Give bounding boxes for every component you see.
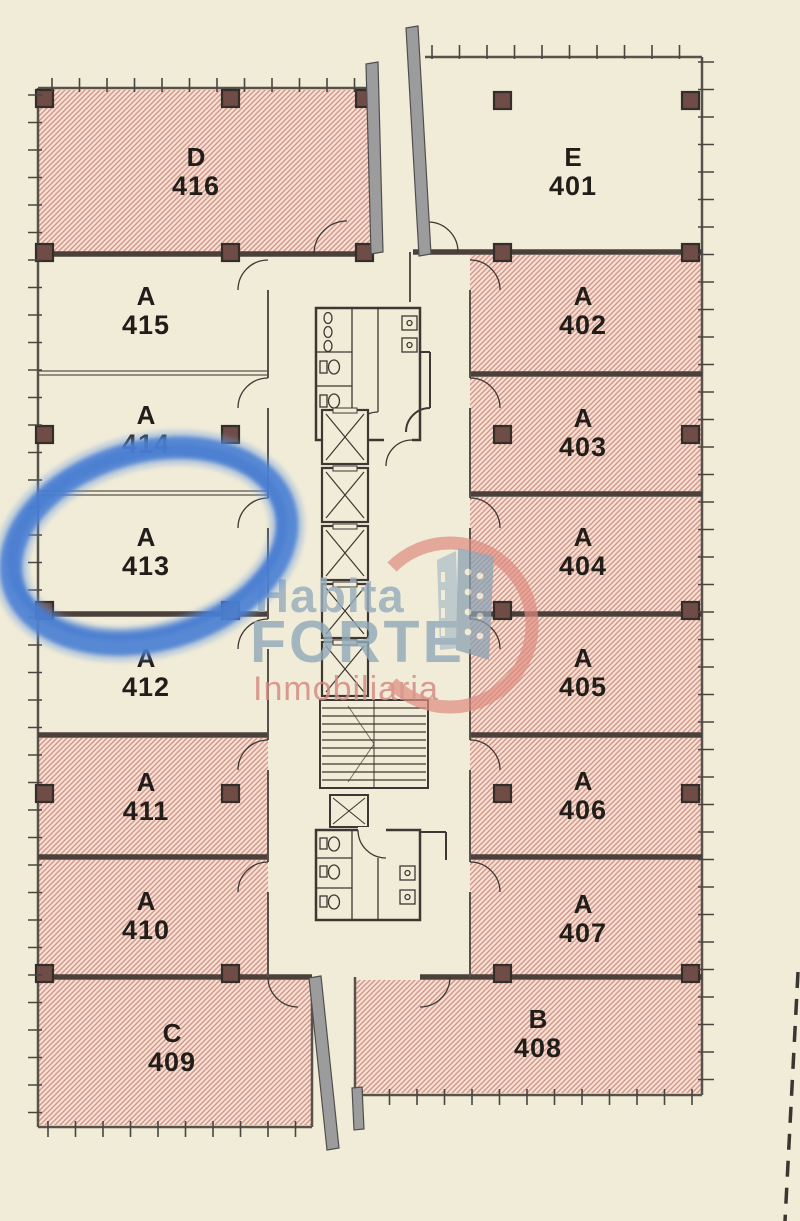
structural-column <box>36 965 53 982</box>
structural-column <box>682 965 699 982</box>
unit-letter: A <box>574 403 593 433</box>
unit-number: 408 <box>514 1033 562 1063</box>
mullion-bar <box>309 976 339 1150</box>
bathroom-bottom <box>316 827 446 920</box>
service-shaft <box>330 795 368 827</box>
room-C-409: C409 <box>38 980 312 1125</box>
unit-letter: A <box>137 281 156 311</box>
room-E-401: E401 <box>425 59 702 250</box>
structural-column <box>494 785 511 802</box>
unit-number: 415 <box>122 310 170 340</box>
toilet-icon <box>320 837 340 851</box>
unit-number: 412 <box>122 672 170 702</box>
watermark-text-inmobiliaria: Inmobiliaria <box>253 670 439 708</box>
unit-letter: A <box>137 767 156 797</box>
structural-column <box>36 785 53 802</box>
structural-column <box>36 426 53 443</box>
urinal-icon <box>324 341 332 352</box>
unit-number: 410 <box>122 915 170 945</box>
unit-letter: A <box>574 766 593 796</box>
unit-number: 407 <box>559 918 607 948</box>
toilet-icon <box>320 360 340 374</box>
unit-number: 401 <box>549 171 597 201</box>
mullion-bar <box>352 1087 364 1130</box>
sink-icon <box>400 890 415 904</box>
structural-column <box>222 90 239 107</box>
structural-column <box>682 244 699 261</box>
unit-letter: C <box>163 1018 182 1048</box>
unit-number: 403 <box>559 432 607 462</box>
structural-column <box>494 92 511 109</box>
unit-number: 402 <box>559 310 607 340</box>
structural-column <box>494 602 511 619</box>
toilet-icon <box>320 895 340 909</box>
floor-plan-svg: D416A415A414A413A412A411A410C409E401A402… <box>0 0 800 1221</box>
sink-icon <box>402 316 417 330</box>
elevator-cell <box>322 408 368 464</box>
toilet-icon <box>320 394 340 408</box>
room-A-405: A405 <box>470 617 702 733</box>
dashed-boundary-line <box>785 972 798 1221</box>
room-A-402: A402 <box>470 255 702 372</box>
sink-icon <box>402 338 417 352</box>
room-A-410: A410 <box>38 860 268 975</box>
structural-column <box>682 785 699 802</box>
unit-number: 404 <box>559 551 607 581</box>
structural-column <box>682 92 699 109</box>
structural-column <box>682 426 699 443</box>
unit-letter: A <box>574 522 593 552</box>
unit-letter: E <box>564 142 581 172</box>
structural-column <box>36 90 53 107</box>
stairs <box>320 700 428 788</box>
urinal-icon <box>324 327 332 338</box>
structural-column <box>494 426 511 443</box>
watermark-text-forte: FORTE <box>250 609 465 675</box>
unit-letter: A <box>137 400 156 430</box>
structural-column <box>494 244 511 261</box>
unit-letter: B <box>529 1004 548 1034</box>
structural-column <box>222 244 239 261</box>
structural-column <box>222 965 239 982</box>
lobby-wall <box>406 352 430 432</box>
unit-letter: A <box>137 522 156 552</box>
unit-number: 411 <box>123 796 170 826</box>
floor-plan-image: D416A415A414A413A412A411A410C409E401A402… <box>0 0 800 1221</box>
structural-column <box>36 244 53 261</box>
unit-letter: A <box>574 281 593 311</box>
structural-column <box>222 785 239 802</box>
room-A-404: A404 <box>470 497 702 612</box>
room-B-408: B408 <box>355 980 702 1093</box>
room-D-416: D416 <box>38 90 370 252</box>
unit-number: 416 <box>172 171 220 201</box>
unit-number: 413 <box>122 551 170 581</box>
room-A-415: A415 <box>38 257 268 369</box>
unit-number: 405 <box>559 672 607 702</box>
room-A-407: A407 <box>470 860 702 975</box>
structural-column <box>494 965 511 982</box>
unit-letter: A <box>574 889 593 919</box>
structural-column <box>682 602 699 619</box>
unit-number: 406 <box>559 795 607 825</box>
sink-icon <box>400 866 415 880</box>
unit-number: 409 <box>148 1047 196 1077</box>
unit-letter: A <box>574 643 593 673</box>
toilet-icon <box>320 865 340 879</box>
elevator-cell <box>322 466 368 522</box>
urinal-icon <box>324 313 332 324</box>
unit-letter: A <box>137 886 156 916</box>
unit-letter: D <box>187 142 206 172</box>
